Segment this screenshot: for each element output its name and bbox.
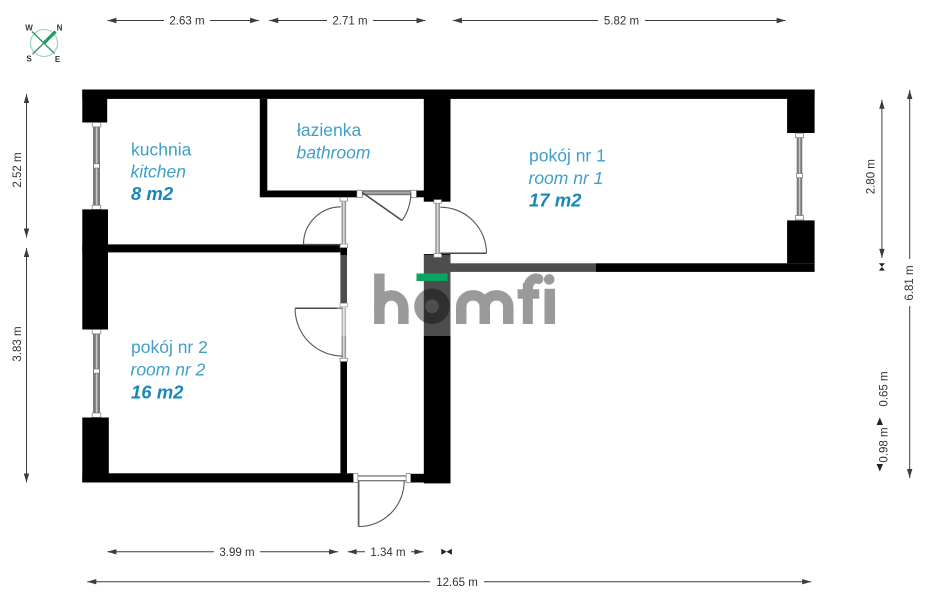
svg-text:room nr 1: room nr 1 xyxy=(529,168,604,188)
svg-text:W: W xyxy=(25,24,33,33)
svg-text:kitchen: kitchen xyxy=(131,162,186,182)
svg-text:8 m2: 8 m2 xyxy=(131,183,174,204)
svg-text:E: E xyxy=(55,55,61,64)
svg-text:S: S xyxy=(26,55,32,64)
svg-text:bathroom: bathroom xyxy=(297,143,371,163)
svg-text:0.65 m: 0.65 m xyxy=(879,371,891,406)
svg-text:6.81 m: 6.81 m xyxy=(904,265,916,300)
svg-text:łazienka: łazienka xyxy=(297,120,361,140)
svg-text:kuchnia: kuchnia xyxy=(131,140,192,160)
svg-text:0.98 m: 0.98 m xyxy=(879,427,891,462)
svg-text:2.71 m: 2.71 m xyxy=(332,16,367,28)
svg-text:2.80 m: 2.80 m xyxy=(866,159,878,194)
svg-text:3.99 m: 3.99 m xyxy=(219,547,254,559)
svg-text:N: N xyxy=(57,24,63,33)
svg-text:1.34 m: 1.34 m xyxy=(370,547,405,559)
svg-text:pokój nr 1: pokój nr 1 xyxy=(529,145,606,165)
svg-text:room nr 2: room nr 2 xyxy=(131,360,206,380)
svg-text:12.65 m: 12.65 m xyxy=(436,577,478,589)
svg-text:16 m2: 16 m2 xyxy=(131,382,184,403)
svg-text:5.82 m: 5.82 m xyxy=(604,16,639,28)
svg-text:3.83 m: 3.83 m xyxy=(12,326,24,361)
svg-text:17 m2: 17 m2 xyxy=(529,190,582,211)
svg-text:pokój nr 2: pokój nr 2 xyxy=(131,337,208,357)
svg-text:2.63 m: 2.63 m xyxy=(169,16,204,28)
svg-text:2.52 m: 2.52 m xyxy=(12,152,24,187)
